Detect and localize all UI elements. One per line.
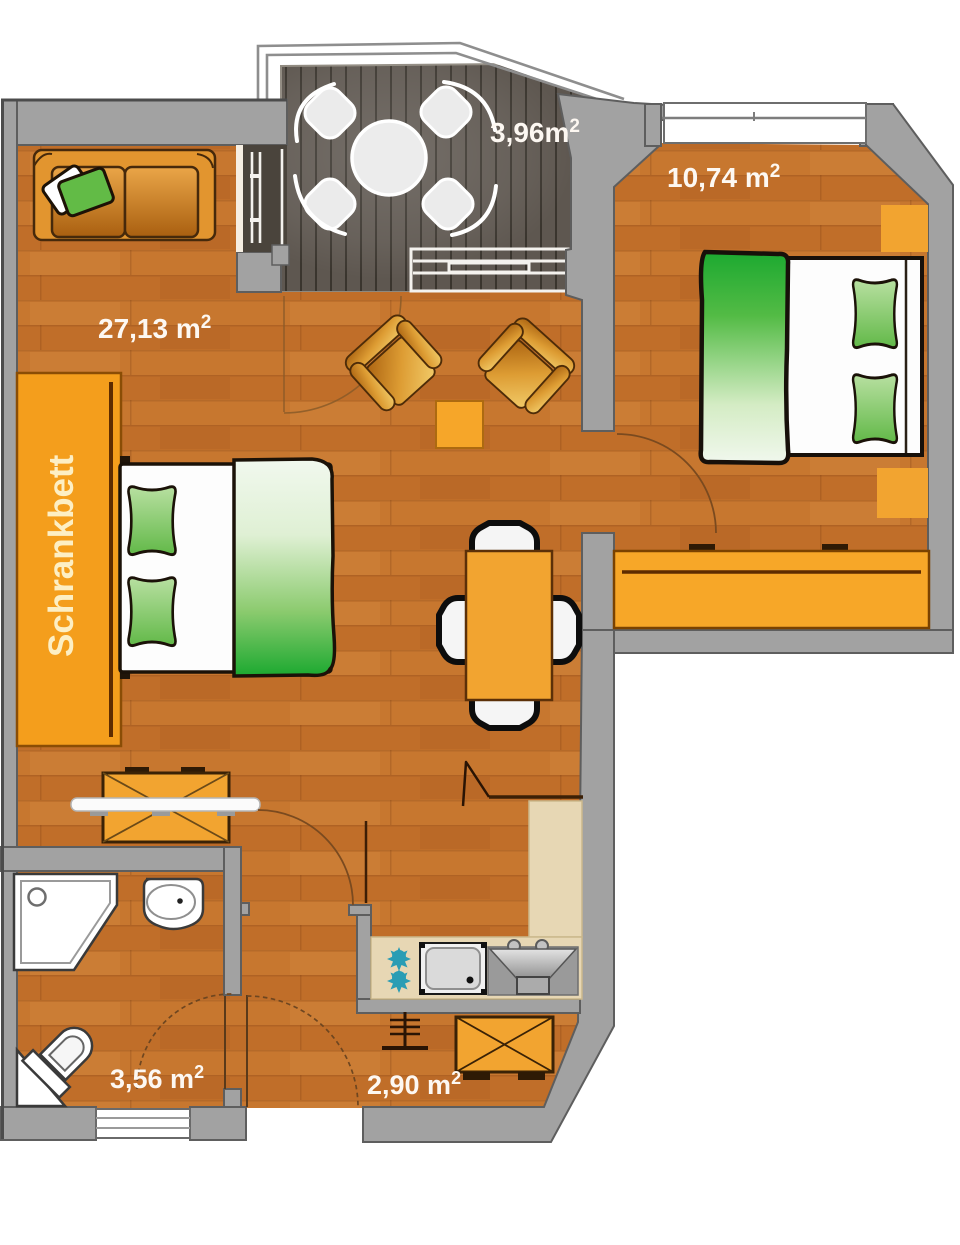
svg-text:10,74 m2: 10,74 m2 <box>667 161 780 193</box>
svg-text:27,13 m2: 27,13 m2 <box>98 312 211 344</box>
svg-text:3,56 m2: 3,56 m2 <box>110 1062 204 1094</box>
svg-text:Schrankbett: Schrankbett <box>42 454 81 657</box>
svg-text:3,96m2: 3,96m2 <box>490 116 580 148</box>
svg-text:2,90 m2: 2,90 m2 <box>367 1068 461 1100</box>
